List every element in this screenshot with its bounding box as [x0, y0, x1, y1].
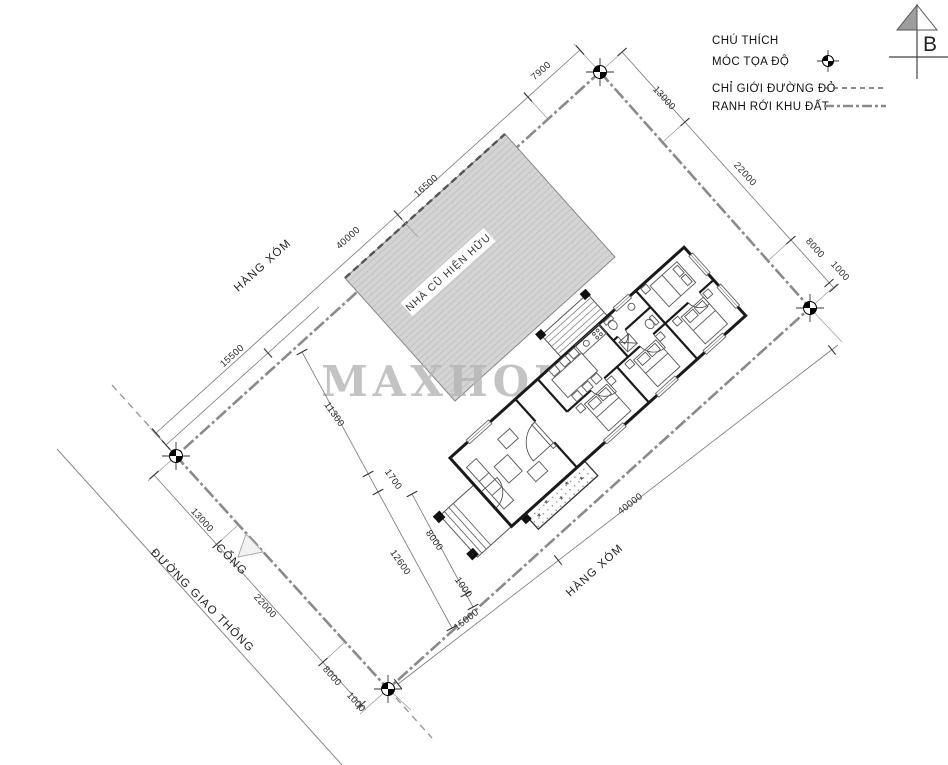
dim-22000-ne: 22000 [731, 160, 758, 188]
dim-7900: 7900 [529, 59, 553, 82]
dim-12600: 12600 [387, 548, 412, 578]
dim-8000-ne: 8000 [803, 236, 826, 260]
site-plan-canvas: NHÀ CŨ HIỆN HỮU MAXHOME 40000 16500 7900… [0, 0, 948, 765]
legend: CHÚ THÍCH MÓC TỌA ĐỘ CHỈ GIỚI ĐƯỜNG ĐỎ R… [712, 34, 886, 113]
dim-1700: 1700 [382, 467, 404, 492]
neighbor-label-top: HÀNG XÓM [231, 236, 293, 294]
legend-item-survey: MÓC TỌA ĐỘ [712, 55, 789, 68]
red-line-extension-2 [388, 689, 432, 738]
dim-15000-se: 15000 [452, 607, 481, 633]
north-arrowhead-left [897, 5, 917, 30]
north-arrow: B [889, 5, 948, 79]
legend-title: CHÚ THÍCH [712, 34, 779, 47]
dim-13000-sw: 13000 [188, 506, 215, 534]
survey-marker-icon [586, 58, 614, 86]
legend-item-redline: CHỈ GIỚI ĐƯỜNG ĐỎ [712, 82, 836, 95]
north-arrowhead-right [917, 5, 937, 30]
legend-item-boundary: RANH RỚI KHU ĐẤT [712, 100, 829, 113]
dim-22000-sw: 22000 [251, 592, 278, 620]
dim-15500: 15500 [218, 343, 246, 370]
neighbor-label-bottom: HÀNG XÓM [563, 541, 625, 599]
north-label: B [923, 33, 937, 56]
survey-marker-legend-icon [817, 50, 839, 72]
dim-13000-ne: 13000 [650, 84, 677, 112]
dim-8000-sw: 8000 [320, 664, 343, 688]
dim-40000: 40000 [334, 225, 362, 252]
dim-40000-se: 40000 [616, 491, 645, 517]
dim-1000-entry: 1000 [452, 575, 474, 600]
dim-1000-ne: 1000 [828, 259, 851, 283]
site-plan-page: NHÀ CŨ HIỆN HỮU MAXHOME 40000 16500 7900… [0, 0, 948, 765]
